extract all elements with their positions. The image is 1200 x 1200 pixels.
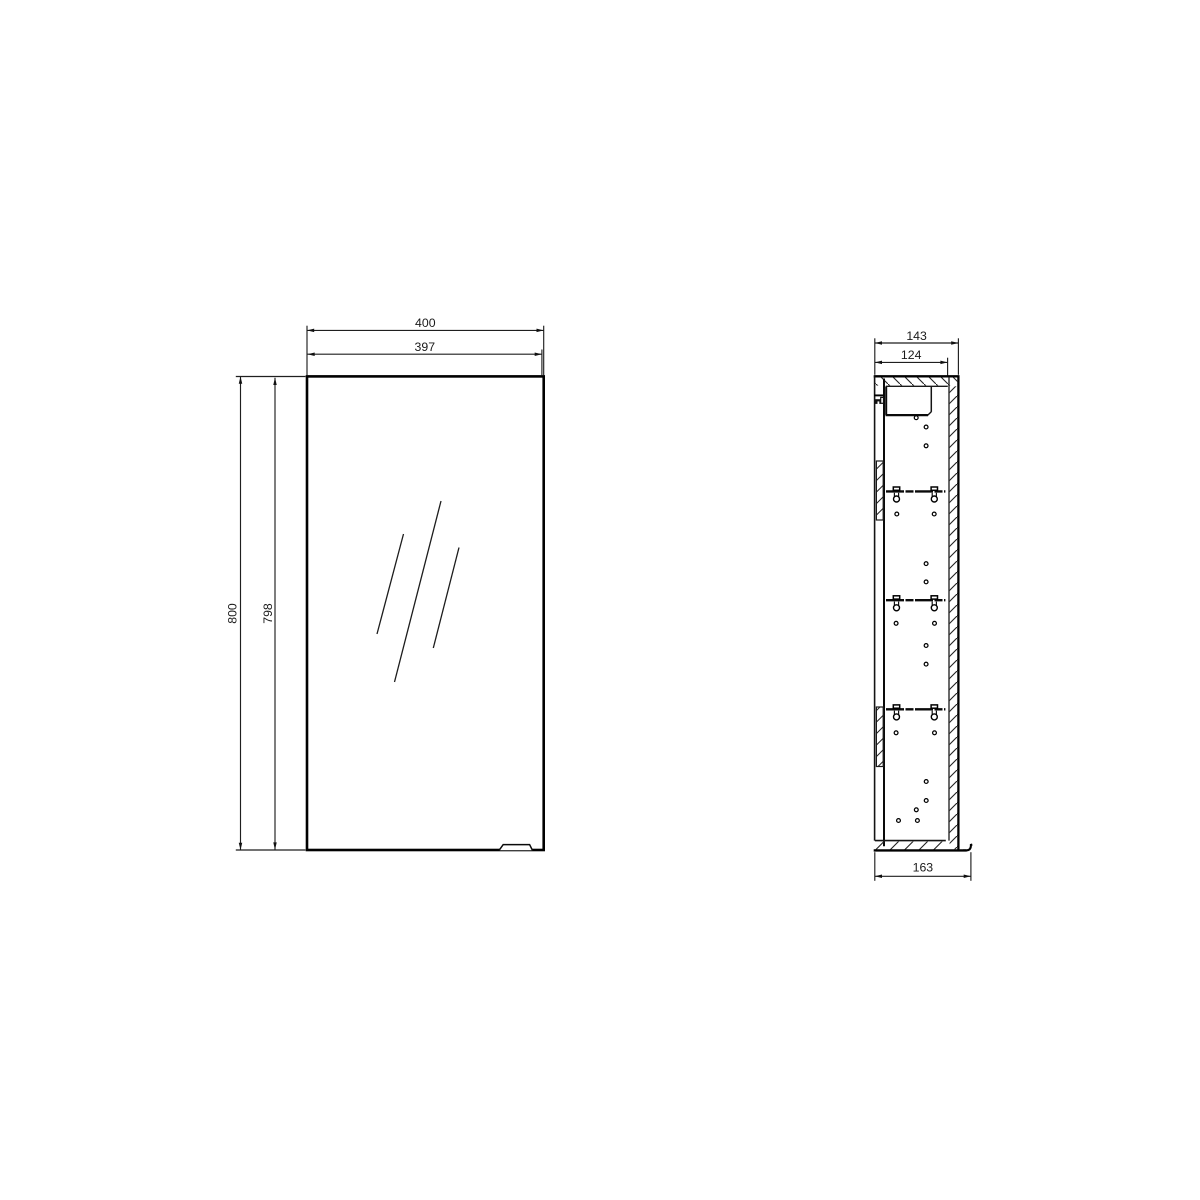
svg-text:124: 124: [901, 348, 922, 362]
svg-text:800: 800: [225, 603, 239, 624]
svg-text:143: 143: [906, 329, 927, 343]
svg-text:163: 163: [913, 861, 934, 875]
svg-text:397: 397: [415, 340, 436, 354]
svg-text:798: 798: [261, 603, 275, 624]
svg-text:400: 400: [415, 316, 436, 330]
